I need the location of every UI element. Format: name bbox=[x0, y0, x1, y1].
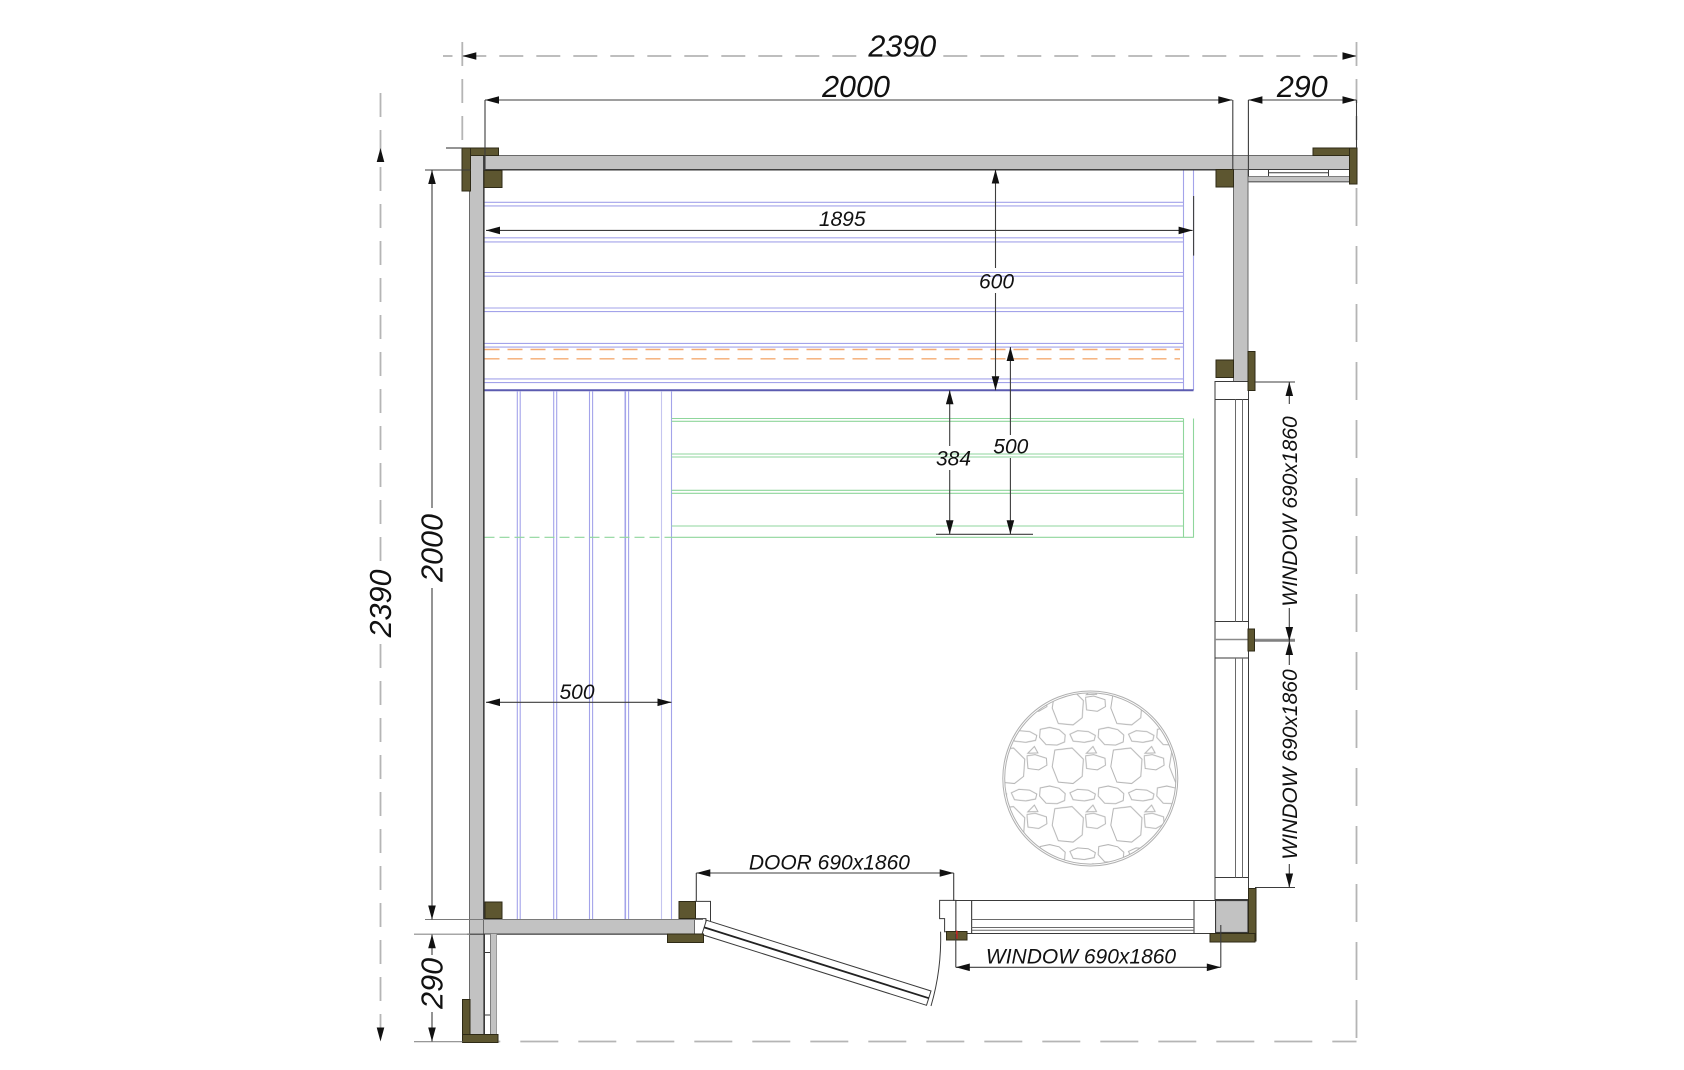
svg-text:WINDOW 690x1860: WINDOW 690x1860 bbox=[986, 946, 1177, 969]
svg-text:290: 290 bbox=[1276, 70, 1328, 104]
svg-text:290: 290 bbox=[416, 958, 450, 1010]
svg-text:2000: 2000 bbox=[416, 514, 450, 583]
svg-text:1895: 1895 bbox=[819, 208, 866, 231]
svg-text:WINDOW 690x1860: WINDOW 690x1860 bbox=[1279, 669, 1302, 860]
svg-text:600: 600 bbox=[979, 271, 1014, 294]
svg-text:2390: 2390 bbox=[364, 570, 398, 639]
svg-text:2000: 2000 bbox=[821, 70, 890, 104]
svg-text:WINDOW 690x1860: WINDOW 690x1860 bbox=[1279, 416, 1302, 607]
svg-text:384: 384 bbox=[936, 447, 971, 470]
svg-text:2390: 2390 bbox=[867, 29, 936, 63]
svg-text:DOOR 690x1860: DOOR 690x1860 bbox=[749, 851, 910, 874]
svg-text:500: 500 bbox=[993, 436, 1028, 459]
svg-text:500: 500 bbox=[559, 681, 594, 704]
